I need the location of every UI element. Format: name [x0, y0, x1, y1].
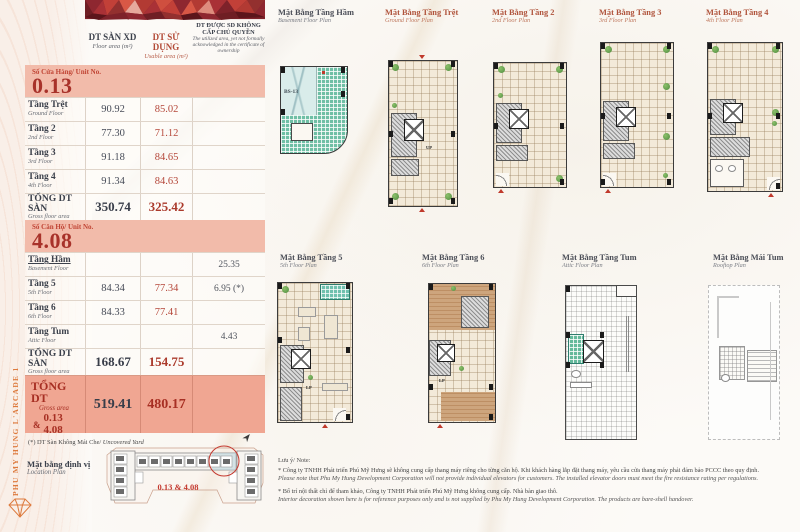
door-arc	[603, 173, 616, 186]
roof-notch	[616, 286, 636, 297]
roof-louver	[747, 350, 777, 382]
pool	[320, 284, 350, 300]
red-poly-banner-art	[85, 0, 265, 21]
table-row: Tầng HầmBasement Floor 25.35	[25, 252, 265, 276]
toilet-fixture	[715, 165, 723, 172]
table-subtotal-row: TỔNG DT SÀNGross floor area 350.74 325.4…	[25, 193, 265, 220]
plant	[663, 83, 670, 90]
toilet-fixture	[571, 370, 581, 378]
header-unlicensed-area: DT ĐƯỢC SD KHÔNG CẤP CHỦ QUYỀN The utili…	[192, 22, 265, 55]
plan-title-3rd: Mặt Bằng Tầng 33rd Floor Plan	[599, 8, 699, 24]
bathroom	[710, 159, 744, 187]
plant	[445, 64, 452, 71]
brochure-page: PHU MY HUNG L'ARCADE 1	[0, 0, 800, 532]
location-unit-tag: 0.13 & 4.08	[142, 482, 214, 492]
plant	[282, 286, 289, 293]
plan-title-6th: Mặt Bằng Tầng 66th Floor Plan	[422, 253, 522, 269]
column-marks	[601, 43, 605, 49]
elevator	[616, 107, 636, 127]
header-usable-area: DT SỬ DỤNG Usable area (m²)	[140, 32, 192, 60]
table-header-row: DT SÀN XD Floor area (m²) DT SỬ DỤNG Usa…	[25, 22, 265, 65]
parapet-line	[717, 296, 719, 338]
entry-marker	[498, 189, 504, 193]
table-subtotal-row: TỔNG DT SÀNGross floor area 168.67 154.7…	[25, 348, 265, 375]
table-row: Tầng TumAttic Floor 4.43	[25, 324, 265, 348]
unit-band-shop: Số Cửa Hàng/ Unit No. 0.13	[25, 65, 265, 97]
plant	[445, 193, 452, 200]
location-plan-label: Mặt bằng định vị Location Plan	[27, 459, 90, 476]
parapet-line	[717, 296, 739, 298]
elevator	[291, 349, 311, 369]
diamond-logo-icon	[8, 498, 32, 519]
column-marks	[389, 61, 393, 67]
notes-block: Lưu ý/ Note: * Công ty TNHH Phát triển P…	[278, 457, 790, 505]
entry-marker	[437, 424, 443, 428]
basement-lobby	[291, 123, 313, 141]
elevator	[723, 103, 743, 123]
plant	[392, 64, 399, 71]
plan-basement: BS-13	[280, 66, 348, 154]
stair-secondary	[496, 145, 528, 161]
door-arc	[767, 177, 780, 190]
door-arc	[333, 408, 346, 421]
plant	[772, 46, 779, 53]
column-marks	[429, 284, 433, 290]
location-plan-drawing	[104, 445, 268, 507]
plan-title-2nd: Mặt Bằng Tầng 22nd Floor Plan	[492, 8, 592, 24]
note-1-en: Please note that Phu My Hung Development…	[278, 475, 790, 484]
plan-title-rooftop: Mặt Bằng Mái TumRooftop Plan	[713, 253, 800, 269]
table-row: Tầng 33rd Floor 91.18 84.65	[25, 145, 265, 169]
entry-marker	[419, 208, 425, 212]
bench	[570, 382, 592, 388]
notes-heading: Lưu ý/ Note:	[278, 457, 790, 466]
plant	[392, 193, 399, 200]
plant	[308, 375, 313, 380]
door-arc	[496, 173, 509, 186]
table-row: Tầng 55th Floor 84.34 77.34 6.95 (*)	[25, 276, 265, 300]
plan-6th: LP	[428, 283, 496, 423]
elevator	[437, 344, 455, 362]
stair-secondary	[391, 159, 419, 176]
column-marks	[281, 67, 285, 73]
stair-teal	[568, 334, 584, 364]
plant	[392, 103, 397, 108]
plant	[451, 286, 456, 291]
plan-3rd	[600, 42, 674, 188]
plan-attic	[565, 285, 637, 440]
plan-title-ground: Mặt Bằng Tầng TrệtGround Floor Plan	[385, 8, 485, 24]
plant	[556, 175, 563, 182]
table-row: Tầng 44th Floor 91.34 84.63	[25, 169, 265, 193]
plant	[459, 366, 464, 371]
plant	[498, 93, 503, 98]
sidebar-vertical-title: PHU MY HUNG L'ARCADE 1	[11, 412, 20, 496]
plant	[772, 121, 777, 126]
basement-ramp: BS-13	[281, 67, 317, 115]
entry-marker	[419, 55, 425, 59]
plan-5th: LP	[277, 282, 353, 423]
wardrobe	[322, 383, 348, 391]
plan-title-attic: Mặt Bằng Tầng TumAttic Floor Plan	[562, 253, 662, 269]
dining-table	[324, 315, 338, 339]
plant	[663, 133, 670, 140]
column-marks	[494, 63, 498, 69]
area-table: DT SÀN XD Floor area (m²) DT SỬ DỤNG Usa…	[25, 0, 265, 446]
column-marks	[566, 286, 570, 292]
entry-marker	[768, 193, 774, 197]
column-marks	[708, 43, 712, 49]
plant	[772, 109, 779, 116]
table-row: Tầng TrệtGround Floor 90.92 85.02	[25, 97, 265, 121]
furniture	[298, 307, 316, 317]
plan-2nd	[493, 62, 567, 188]
plan-rooftop	[708, 285, 780, 440]
entry-marker	[322, 424, 328, 428]
plant	[605, 46, 612, 53]
toilet-fixture	[728, 165, 736, 172]
plant	[498, 66, 505, 73]
elevator	[404, 119, 424, 141]
table-row: Tầng 22nd Floor 77.30 71.12	[25, 121, 265, 145]
plan-title-5th: Mặt Bằng Tầng 55th Floor Plan	[280, 253, 380, 269]
stair-secondary	[710, 137, 750, 157]
unit-band-apartment: Số Căn Hộ/ Unit No. 4.08	[25, 220, 265, 252]
header-floor-area: DT SÀN XD Floor area (m²)	[85, 32, 140, 50]
plant	[556, 66, 563, 73]
plan-title-basement: Mặt Bằng Tầng HầmBasement Floor Plan	[278, 8, 378, 24]
stair-block	[461, 296, 489, 328]
plan-4th	[707, 42, 783, 192]
parapet-line	[770, 302, 772, 420]
entry-marker	[605, 189, 611, 193]
plant	[712, 46, 719, 53]
wood-deck-bottom	[441, 392, 495, 421]
stair-secondary	[603, 143, 635, 159]
note-2-vn: * Bố trí nội thất chỉ để tham khảo, Công…	[278, 488, 790, 497]
plant	[663, 46, 670, 53]
column-marks	[278, 283, 282, 289]
stair-secondary	[280, 387, 302, 421]
plan-ground: UP	[388, 60, 458, 207]
furniture	[298, 327, 310, 341]
table-row: Tầng 66th Floor 84.33 77.41	[25, 300, 265, 324]
railing	[626, 316, 629, 372]
elevator	[509, 109, 529, 129]
grand-total-row: TỔNG DT Gross area & 0.134.08 519.41 480…	[25, 375, 265, 433]
plan-title-4th: Mặt Bằng Tầng 44th Floor Plan	[706, 8, 800, 24]
entry-marker	[322, 71, 325, 74]
toilet-fixture	[721, 374, 730, 382]
plant	[663, 173, 668, 178]
note-2-en: Interior decoration shown here is for re…	[278, 496, 790, 505]
note-1-vn: * Công ty TNHH Phát triển Phú Mỹ Hưng sẽ…	[278, 467, 790, 476]
elevator	[583, 340, 604, 363]
